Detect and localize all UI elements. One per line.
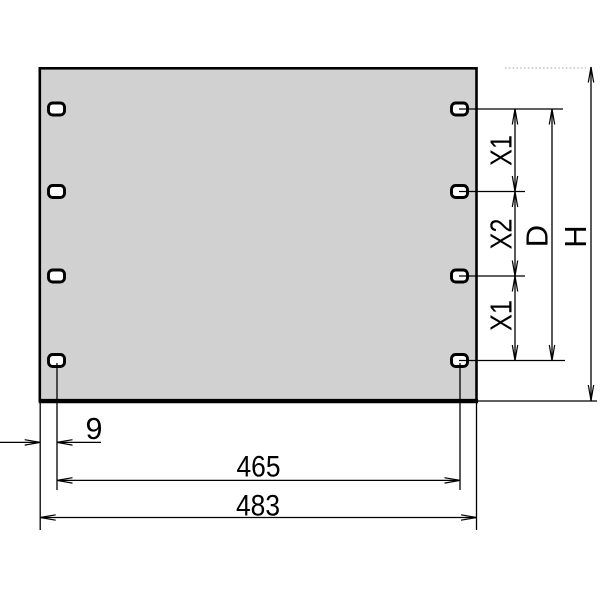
svg-text:D: D xyxy=(520,225,555,247)
svg-text:465: 465 xyxy=(237,450,281,483)
svg-text:H: H xyxy=(558,225,593,247)
svg-text:9: 9 xyxy=(86,412,103,446)
svg-text:X2: X2 xyxy=(484,219,519,250)
svg-text:X1: X1 xyxy=(484,300,519,331)
svg-text:X1: X1 xyxy=(484,135,519,166)
svg-text:483: 483 xyxy=(236,489,280,522)
